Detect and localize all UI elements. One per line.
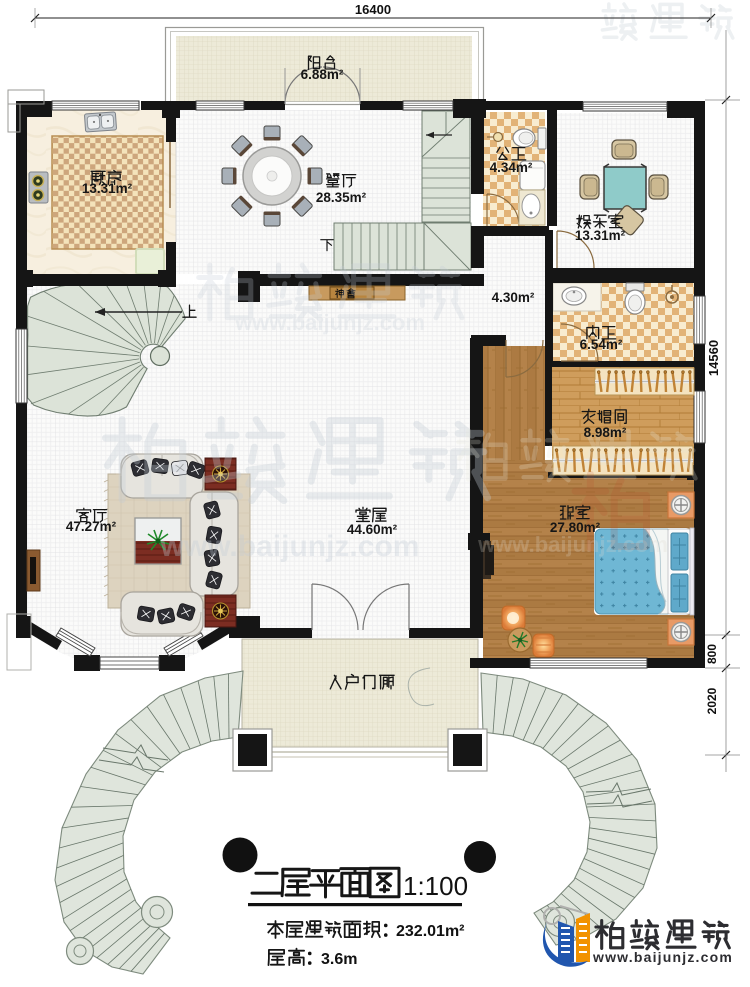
svg-text:8.98m²: 8.98m² [584,425,627,440]
svg-text:800: 800 [705,644,719,664]
svg-text:4.34m²: 4.34m² [490,160,533,175]
svg-text:1:100: 1:100 [403,871,468,901]
svg-text:47.27m²: 47.27m² [66,519,117,534]
svg-text:6.88m²: 6.88m² [301,67,344,82]
svg-text:28.35m²: 28.35m² [316,190,367,205]
svg-text:44.60m²: 44.60m² [347,522,398,537]
svg-text:4.30m²: 4.30m² [492,290,535,305]
svg-text:13.31m²: 13.31m² [575,228,626,243]
svg-text:3.6m: 3.6m [321,951,357,968]
svg-text:232.01m²: 232.01m² [396,923,465,940]
svg-text:2020: 2020 [705,687,719,714]
svg-text:27.80m²: 27.80m² [550,520,601,535]
svg-text:16400: 16400 [355,2,391,17]
svg-text:6.54m²: 6.54m² [580,337,623,352]
svg-text:13.31m²: 13.31m² [82,181,133,196]
svg-text:www.baijunjz.com: www.baijunjz.com [592,949,733,965]
svg-text:www.baijunjz.com: www.baijunjz.com [234,310,425,335]
svg-text:14560: 14560 [706,340,721,376]
